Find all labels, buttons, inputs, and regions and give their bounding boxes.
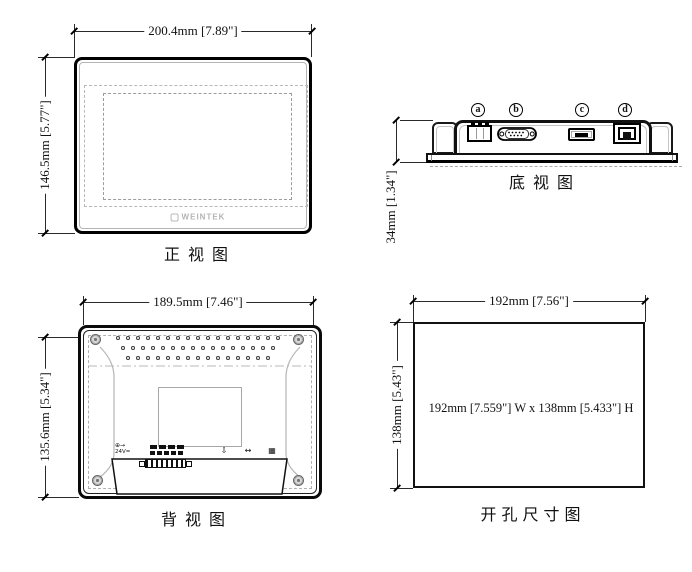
display-active-area-dashed [103,93,292,200]
extension-line [400,120,433,121]
terminal-divider [476,128,477,139]
vent-holes-row [119,344,275,352]
back-view-caption: 背视图 [161,506,233,530]
voltage-marking: 24V= [115,449,130,455]
rj45-jack [623,132,631,140]
brand-logo: WEINTEK [171,213,226,222]
usb-icon: ⇩ [221,446,228,455]
label-text-block [150,451,184,455]
usb-connector [568,128,595,141]
cutout-view-caption: 开孔尺寸图 [480,501,585,525]
cutout-height-dimension: 138mm [5.43"] [390,361,404,449]
screw-top-right [293,334,304,345]
power-icon: ⊕→ [115,442,125,449]
port-label-d: d [618,103,632,117]
screw-top-left [90,334,101,345]
strip-tab [186,461,192,467]
port-label-c: c [575,103,589,117]
brand-logo-icon [171,213,179,221]
mounting-ear-left-inner [436,126,454,154]
power-terminal-connector [467,125,492,142]
back-width-dimension: 189.5mm [7.46"] [149,295,246,309]
terminal-pin [485,122,489,127]
dimension-line [396,120,397,162]
front-width-dimension: 200.4mm [7.89"] [144,24,241,38]
back-height-dimension: 135.6mm [5.34"] [38,368,52,465]
front-view-caption: 正视图 [164,241,236,265]
screw-bottom-left [92,475,103,486]
extension-line [400,162,427,163]
screw-bottom-right [293,475,304,486]
terminal-pin [471,122,475,127]
com-icon: ↔ [245,446,252,455]
port-label-a: a [471,103,485,117]
vent-holes-row [114,334,280,342]
vent-holes-row [124,354,270,362]
dimension-drawing-canvas: 200.4mm [7.89"] 146.5mm [5.77"] WEINTEK … [0,0,692,572]
bottom-height-dimension: 34mm [1.34"] [384,166,398,247]
cutout-note: 192mm [7.559"] W x 138mm [5.433"] H [425,402,638,416]
db9-serial-connector [497,126,537,142]
front-height-dimension: 146.5mm [5.77"] [38,96,52,193]
cutout-width-dimension: 192mm [7.56"] [485,294,573,308]
lan-icon: ▦ [268,446,276,455]
port-label-b: b [509,103,523,117]
dim-tick [308,27,315,34]
mounting-ear-right-inner [651,126,669,154]
bottom-view-caption: 底视图 [509,169,581,193]
usb-tongue [575,133,588,137]
brand-logo-text: WEINTEK [182,213,226,222]
bezel-notch [431,155,432,161]
terminal-divider [483,128,484,139]
bezel-notch [672,155,673,161]
dip-switch-strip [145,459,186,468]
label-text-block [150,445,184,449]
terminal-pin [478,122,482,127]
front-bezel-edge [426,153,678,163]
dim-tick [392,158,399,165]
hidden-edge-dashed [430,166,682,167]
ethernet-connector [613,123,641,144]
